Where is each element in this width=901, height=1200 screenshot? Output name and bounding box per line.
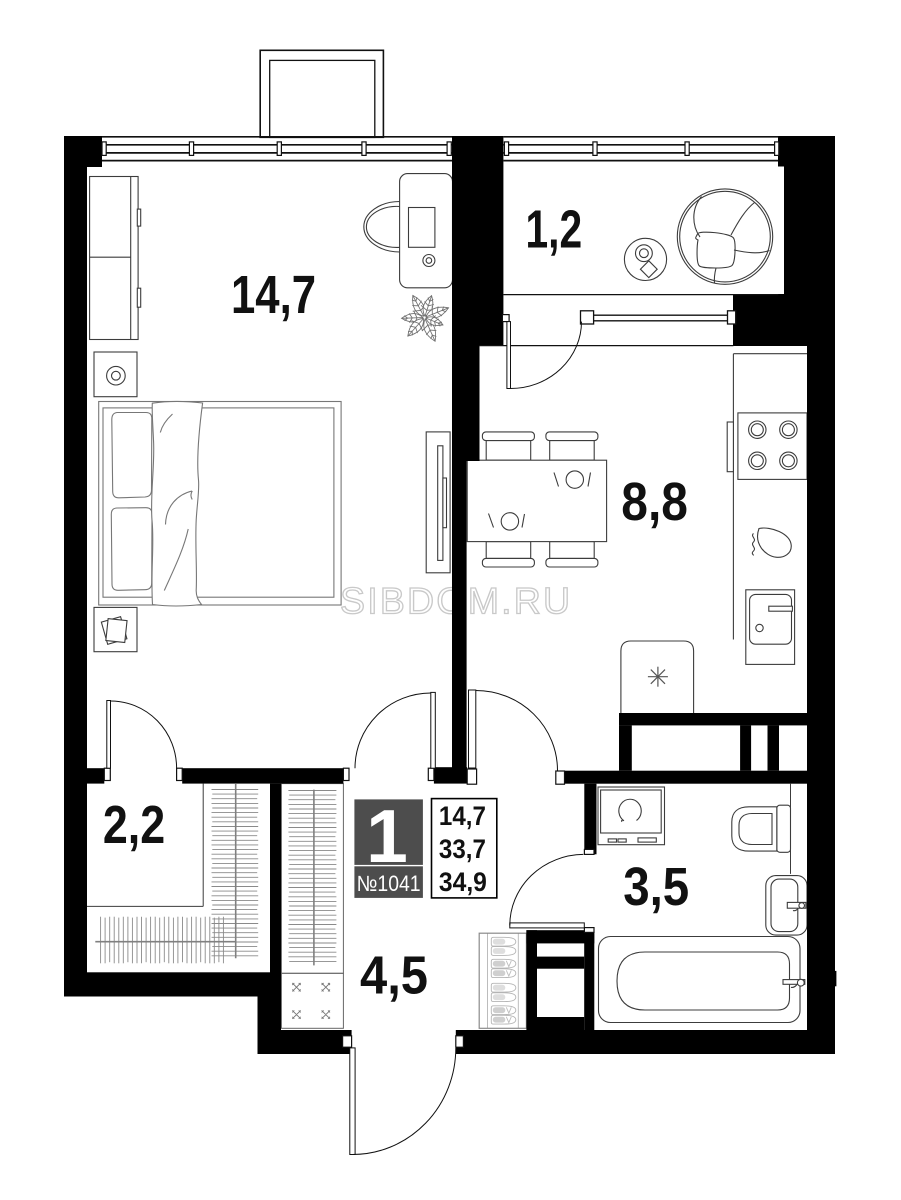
svg-text:2,2: 2,2 [103,796,165,855]
svg-text:8,8: 8,8 [621,473,688,532]
svg-text:33,7: 33,7 [439,834,486,864]
svg-text:34,9: 34,9 [439,867,487,897]
svg-text:14,7: 14,7 [231,266,316,325]
svg-text:1: 1 [366,794,408,878]
svg-text:№1041: №1041 [357,871,421,896]
svg-text:4,5: 4,5 [360,946,428,1005]
svg-text:14,7: 14,7 [439,801,486,831]
svg-text:3,5: 3,5 [623,858,689,917]
svg-text:1,2: 1,2 [526,201,583,260]
